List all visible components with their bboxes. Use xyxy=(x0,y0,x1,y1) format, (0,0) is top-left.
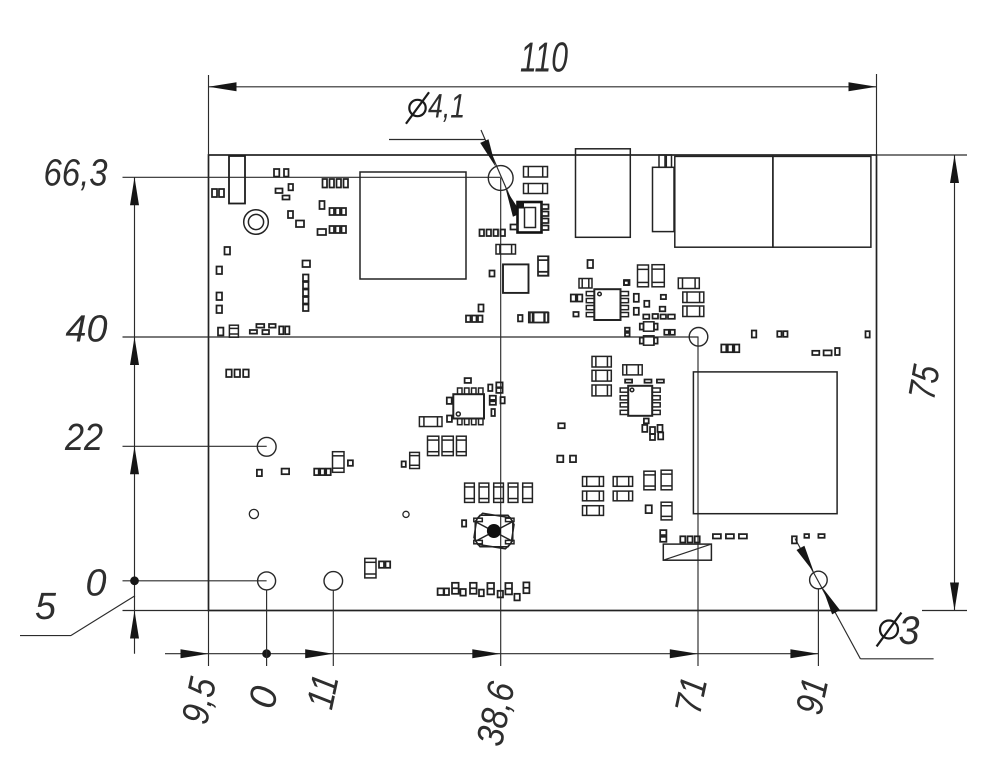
svg-text:22: 22 xyxy=(64,417,103,459)
svg-text:3: 3 xyxy=(898,609,919,653)
svg-text:110: 110 xyxy=(520,33,568,80)
svg-text:66,3: 66,3 xyxy=(43,152,107,194)
svg-text:4,1: 4,1 xyxy=(428,88,465,126)
svg-text:40: 40 xyxy=(65,308,107,350)
svg-text:0: 0 xyxy=(85,562,106,604)
svg-text:5: 5 xyxy=(35,586,57,628)
